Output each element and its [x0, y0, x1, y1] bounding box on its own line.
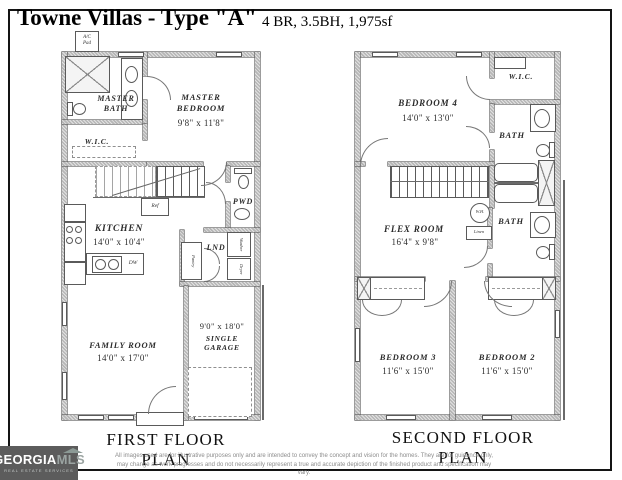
georgia-mls-logo: GEORGIAMLS REAL ESTATE SERVICES [0, 446, 78, 480]
sink-icon [125, 66, 138, 83]
disclaimer-line2: may change as work progresses and do not… [110, 461, 498, 478]
page-title: Towne Villas - Type "A" [17, 5, 257, 31]
room-label-family-room: FAMILY ROOM [78, 340, 168, 351]
party-wall-line [262, 285, 264, 420]
logo-georgia: GEORGIA [0, 453, 57, 466]
room-label-bath-upper: BATH [492, 130, 532, 141]
stairs [95, 166, 156, 197]
disclaimer-line1: All images used are for illustrative pur… [110, 452, 498, 461]
kitchen-counter [64, 204, 86, 222]
room-label-pwd: PWD [228, 197, 258, 207]
window [108, 415, 134, 420]
wall [490, 104, 494, 132]
window [355, 328, 360, 362]
toilet-icon [536, 246, 550, 259]
wall [255, 52, 260, 420]
window [456, 52, 482, 57]
wall [355, 52, 360, 420]
pantry-label: Pantry [187, 247, 195, 275]
burner-icon [66, 237, 73, 244]
dim-bedroom4: 14'0" x 13'0" [386, 113, 470, 123]
closet-shelf [72, 146, 136, 158]
room-label-lnd: LND [202, 243, 230, 253]
stairs [156, 166, 205, 197]
stairs-rail [390, 181, 489, 182]
room-label-bedroom4: BEDROOM 4 [390, 98, 466, 109]
room-label-flex: FLEX ROOM [374, 224, 454, 235]
dim-master-bedroom: 9'8" x 11'8" [160, 118, 242, 128]
wall [488, 264, 492, 278]
window [482, 415, 512, 420]
closet-end [357, 277, 371, 300]
room-label-bedroom2: BEDROOM 2 [469, 352, 545, 363]
home-specs: 4 BR, 3.5BH, 1,975sf [262, 14, 392, 31]
room-label-master-bedroom: MASTER BEDROOM [165, 92, 237, 113]
room-label-garage: SINGLE GARAGE [192, 334, 252, 353]
dim-bedroom3: 11'6" x 15'0" [368, 366, 448, 376]
wall [450, 281, 455, 420]
bathtub-icon [494, 184, 538, 203]
shower-icon [65, 56, 110, 93]
window [216, 52, 242, 57]
dim-family-room: 14'0" x 17'0" [80, 353, 166, 363]
kitchen-counter [64, 262, 86, 285]
window [555, 310, 560, 338]
window [386, 415, 416, 420]
room-label-wic2: W.I.C. [496, 72, 546, 81]
floor-plan-sheet: Towne Villas - Type "A" 4 BR, 3.5BH, 1,9… [0, 0, 622, 480]
burner-icon [75, 226, 82, 233]
sink-icon [234, 208, 250, 220]
logo-mls: MLS [57, 453, 85, 466]
window [62, 302, 67, 326]
linen-label: Linen [466, 230, 492, 235]
stairs [390, 166, 489, 198]
room-label-wic: W.I.C. [74, 137, 120, 146]
room-label-kitchen: KITCHEN [84, 224, 154, 236]
roof-icon [63, 448, 83, 453]
wall [227, 162, 260, 166]
window [62, 372, 67, 400]
room-label-bedroom3: BEDROOM 3 [370, 352, 446, 363]
window [372, 52, 398, 57]
ac-pad-label: A/C Pad [75, 35, 99, 46]
garage-dashed-area [188, 367, 252, 417]
sink-icon [534, 216, 550, 234]
bathtub-icon [494, 163, 538, 182]
dishwasher-label: DW [124, 260, 142, 266]
room-label-bath-lower: BATH [492, 216, 530, 227]
room-label-master-bath: MASTER BATH [84, 94, 148, 114]
party-wall-line [563, 180, 565, 420]
dim-bedroom2: 11'6" x 15'0" [467, 366, 547, 376]
chase-icon [538, 160, 555, 206]
water-heater-label: W.H. [470, 210, 490, 215]
door-opening [148, 415, 174, 420]
wall [180, 282, 260, 286]
wall [226, 166, 230, 182]
sink-icon [95, 259, 106, 270]
closet-rod [374, 288, 422, 289]
window [118, 52, 144, 57]
window [78, 415, 104, 420]
wall [62, 120, 147, 124]
toilet-icon [238, 175, 249, 189]
toilet-icon [536, 144, 550, 157]
dim-garage: 9'0" x 18'0" [192, 321, 252, 331]
dryer-label: Dryer [235, 260, 243, 278]
dim-flex: 16'4" x 9'8" [376, 237, 454, 247]
logo-tagline: REAL ESTATE SERVICES [4, 468, 74, 473]
refrigerator-label: Ref [141, 203, 169, 209]
closet-shelf [494, 57, 526, 69]
disclaimer: All images used are for illustrative pur… [110, 452, 498, 478]
toilet-icon [234, 168, 252, 174]
dim-kitchen: 14'0" x 10'4" [80, 237, 158, 247]
logo-wordmark: GEORGIAMLS [0, 453, 85, 466]
wall [143, 124, 147, 140]
burner-icon [66, 226, 73, 233]
sink-icon [108, 259, 119, 270]
closet-end [542, 277, 556, 300]
sink-icon [534, 109, 550, 128]
washer-label: Washer [235, 235, 243, 255]
